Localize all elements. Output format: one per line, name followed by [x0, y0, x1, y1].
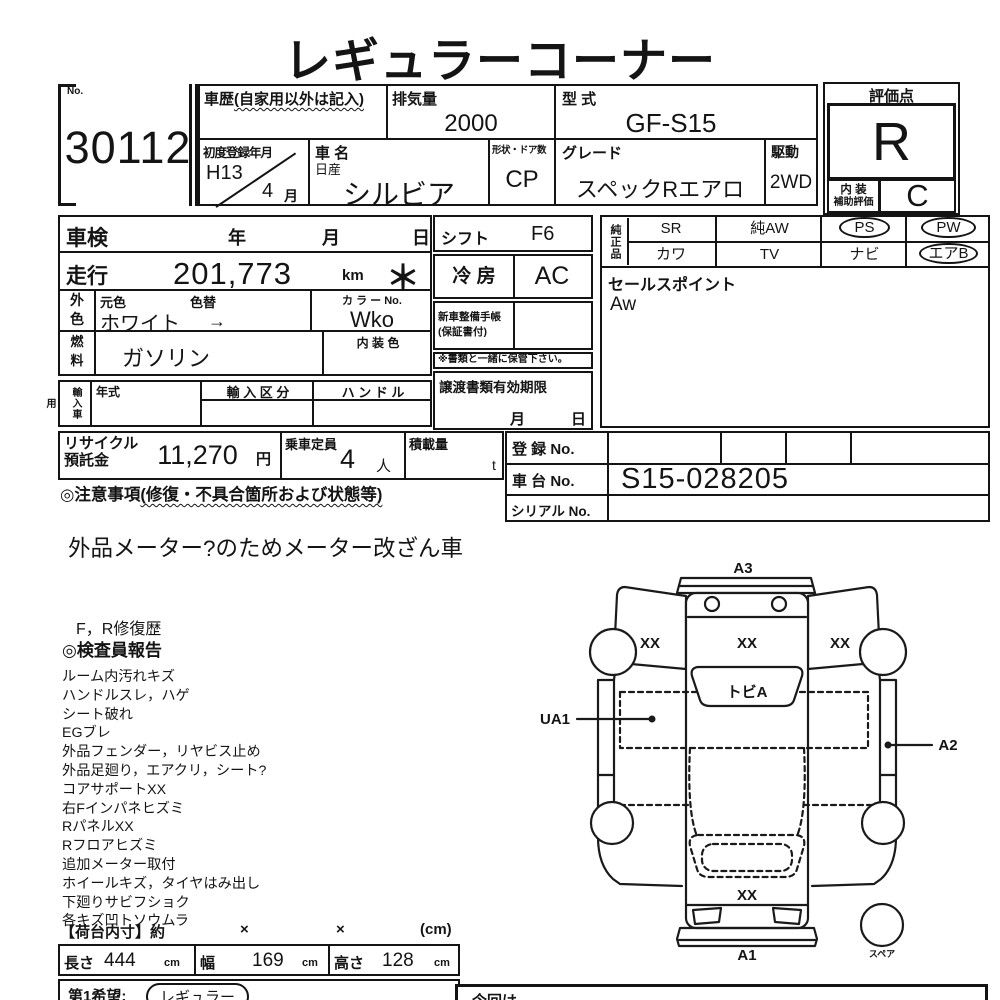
auction-sheet: レギュラーコーナー No. 30112 車歴(自家用以外は記入) 排気量 200… [0, 0, 1000, 1000]
drive-cell: 駆動 2WD [764, 138, 818, 206]
first-reg-year: H13 [206, 162, 243, 185]
first-wish-label: 第1希望: [68, 985, 126, 1000]
shift-value: F6 [531, 223, 554, 246]
diagram-label-xx-left: XX [640, 635, 660, 652]
car-condition-diagram: A3 XX XX XX トビA UA1 A2 XX A1 スペア [530, 553, 1000, 983]
displacement-label: 排気量 [392, 88, 437, 109]
displacement-value: 2000 [388, 110, 554, 138]
remark-item: 下廻りサビフショク [62, 892, 462, 911]
caution-note: 外品メーター?のためメーター改ざん車 [68, 531, 463, 563]
caution-heading: ◎注意事項(修復・不具合箇所および状態等) [60, 481, 382, 505]
service-book-label-box: 新車整備手帳 (保証書付) [435, 303, 515, 348]
oem-ps: PS [820, 217, 907, 243]
drive-label: 駆動 [771, 142, 799, 162]
color-change-arrow: → [208, 311, 226, 332]
first-reg-month: 4 [262, 180, 273, 203]
remark-item: 右Fインパネヒズミ [62, 798, 462, 817]
score-value: R [827, 103, 956, 180]
right-rocker-panel [880, 680, 896, 775]
height-value: 128 [382, 950, 414, 972]
cargo-x1: × [240, 921, 249, 938]
lot-number: 30112 [61, 122, 195, 174]
shaken-row: 車検 年 月 日 [58, 215, 432, 253]
shaken-year-unit: 年 [228, 224, 246, 250]
load-label: 積載量 [409, 434, 448, 453]
import-class-cell: 輸 入 区 分 [200, 382, 314, 425]
displacement-cell: 排気量 2000 [386, 84, 556, 140]
width-label: 幅 [200, 952, 215, 973]
oem-kawa: カワ [627, 243, 715, 266]
reg-no-label: 登 録 No. [512, 438, 575, 459]
registration-table: 登 録 No. 車 台 No. S15-028205 シリアル No. [505, 431, 990, 522]
oem-airbag: エアB [905, 243, 990, 266]
oem-aw: 純AW [715, 217, 822, 243]
oem-header: 純正品 [602, 218, 629, 265]
import-class-label: 輸 入 区 分 [202, 382, 314, 401]
spare-tire-circle [861, 904, 903, 946]
length-cell: 長さ 444 cm [60, 946, 194, 974]
history-label: 車歴 [204, 91, 234, 108]
front-bumper [677, 928, 817, 946]
inspector-heading: ◎検査員報告 [62, 636, 162, 661]
remark-item: コアサポートXX [62, 779, 462, 798]
transfer-docs-label: 譲渡書類有効期限 [439, 376, 547, 396]
length-unit: cm [164, 957, 180, 969]
history-note: (自家用以外は記入) [234, 91, 364, 108]
diagram-label-xx-front: XX [737, 887, 757, 904]
remark-item: 外品足廻り，エアクリ，シート? [62, 760, 462, 779]
color-change-label: 色替 [190, 292, 216, 311]
remark-item: ルーム内汚れキズ [62, 666, 462, 685]
front-right-wheel [862, 802, 904, 844]
front-left-wheel [591, 802, 633, 844]
oem-navi: ナビ [820, 243, 907, 266]
height-unit: cm [434, 957, 450, 969]
exterior-color-header: 外 色 [60, 291, 96, 330]
bottom-right-note-box: 今回は [455, 984, 988, 1000]
remark-item: 追加メーター取付 [62, 854, 462, 873]
car-name-cell: 車 名 日産 シルビア [308, 138, 490, 206]
interior-color-cell: 内 装 色 [322, 332, 432, 374]
import-handle-cell: ハ ン ド ル [312, 382, 432, 425]
remark-item: 外品フェンダー，リヤビス止め [62, 741, 462, 760]
first-wish-box: 第1希望: レギュラー [58, 979, 460, 1000]
ac-value: AC [513, 256, 591, 297]
capacity-cell: 乗車定員 4 人 [280, 433, 406, 478]
rear-left-wheel [590, 629, 636, 675]
first-wish-value: レギュラー [146, 983, 249, 1000]
page-title: レギュラーコーナー [0, 22, 1000, 91]
grade-value: スペックRエアロ [556, 172, 764, 204]
bottom-right-partial-text: 今回は [472, 990, 517, 1000]
width-value: 169 [252, 950, 284, 972]
shift-cell: シフト F6 [433, 215, 593, 252]
car-name-value: シルビア [310, 173, 488, 213]
remark-item: RパネルXX [62, 816, 462, 835]
rear-right-wheel [860, 629, 906, 675]
reg-divider-3 [850, 433, 852, 463]
capacity-unit: 人 [376, 455, 391, 476]
serial-label-cell: シリアル No. [507, 496, 609, 520]
dimensions-table: 長さ 444 cm 幅 169 cm 高さ 128 cm [58, 944, 460, 976]
cargo-unit: (cm) [420, 921, 452, 938]
interior-score-label: 内 装 補助評価 [827, 179, 880, 213]
recycle-unit: 円 [256, 448, 271, 469]
fuel-header: 燃 料 [60, 332, 96, 374]
capacity-label: 乗車定員 [285, 434, 337, 453]
import-row: 輸入車用 年式 輸 入 区 分 ハ ン ド ル [58, 380, 432, 427]
chassis-row: 車 台 No. S15-028205 [507, 463, 988, 496]
fuel-value: ガソリン [122, 341, 210, 373]
transfer-month-unit: 月 [510, 408, 525, 429]
length-label: 長さ [64, 952, 94, 973]
diagram-label-a1: A1 [737, 947, 756, 964]
body-doors-cell: 形状・ドア数 CP [488, 138, 556, 206]
capacity-value: 4 [340, 444, 355, 475]
reg-no-label-cell: 登 録 No. [507, 433, 609, 463]
sales-point-label: セールスポイント [608, 271, 736, 295]
mileage-unit: km [342, 267, 364, 284]
diagram-label-xx-roof: XX [737, 635, 757, 652]
recycle-cell: リサイクル 預託金 11,270 円 [60, 433, 280, 478]
import-year-label: 年式 [96, 383, 120, 400]
shift-label: シフト [441, 225, 489, 249]
body-doors-label: 形状・ドア数 [492, 142, 546, 156]
diagram-label-a3: A3 [733, 560, 752, 577]
import-handle-label: ハ ン ド ル [314, 382, 432, 401]
shaken-label: 車検 [66, 222, 108, 252]
grade-cell: グレード スペックRエアロ [554, 138, 766, 206]
remark-item: ハンドルスレ，ハゲ [62, 685, 462, 704]
oem-sr: SR [627, 217, 715, 243]
recycle-value: 11,270 [145, 440, 250, 471]
serial-label: シリアル No. [511, 500, 590, 520]
grade-label: グレード [562, 142, 622, 163]
service-book-cell: 新車整備手帳 (保証書付) [433, 301, 593, 350]
score-box: 評価点 R 内 装 補助評価 C [823, 82, 960, 215]
left-rocker-panel [598, 680, 614, 775]
oem-pw: PW [905, 217, 990, 243]
width-cell: 幅 169 cm [194, 946, 330, 974]
shaken-day-unit: 日 [412, 224, 430, 250]
model-code-label: 型 式 [562, 88, 596, 109]
mileage-label: 走行 [66, 260, 108, 290]
cargo-x2: × [336, 921, 345, 938]
diagram-label-a2: A2 [938, 737, 957, 754]
remark-item: シート破れ [62, 704, 462, 723]
height-cell: 高さ 128 cm [328, 946, 462, 974]
service-book-label: 新車整備手帳 [438, 309, 513, 324]
sales-point-value: Aw [610, 294, 636, 316]
diagram-label-rear-glass: トビA [727, 684, 768, 701]
fuel-row: 燃 料 ガソリン 内 装 色 [58, 330, 432, 376]
keep-note: ※書類と一緒に保管下さい。 [433, 352, 593, 369]
recycle-row: リサイクル 預託金 11,270 円 乗車定員 4 人 積載量 t [58, 431, 504, 480]
color-no-label: カ ラ ー No. [312, 292, 432, 308]
first-reg-label: 初度登録年月 [203, 142, 272, 161]
diagram-label-xx-right: XX [830, 635, 850, 652]
load-cell: 積載量 t [404, 433, 504, 478]
import-header: 輸入車用 [62, 383, 88, 424]
remark-item: ホイールキズ，タイヤはみ出し [62, 873, 462, 892]
reg-divider-1 [720, 433, 722, 463]
cargo-heading: 【荷台内寸】約 [60, 921, 165, 942]
exterior-color-row: 外 色 元色 色替 ホワイト → カ ラ ー No. Wko [58, 289, 432, 332]
divider-bar [189, 84, 198, 206]
chassis-label: 車 台 No. [512, 470, 575, 491]
import-year-cell: 年式 [90, 382, 202, 425]
length-value: 444 [104, 950, 136, 972]
drive-value: 2WD [766, 172, 816, 194]
height-label: 高さ [334, 952, 364, 973]
color-no-cell: カ ラ ー No. Wko [310, 291, 432, 330]
transfer-docs-cell: 譲渡書類有効期限 月 日 [433, 371, 593, 430]
ac-cell: 冷 房 AC [433, 254, 593, 299]
reg-divider-2 [785, 433, 787, 463]
inspector-remarks-list: ルーム内汚れキズ ハンドルスレ，ハゲ シート破れ EGブレ 外品フェンダー，リヤ… [62, 666, 462, 929]
mileage-row: 走行 201,773 km ＊ [58, 251, 432, 291]
remark-item: Rフロアヒズミ [62, 835, 462, 854]
ac-label: 冷 房 [435, 256, 515, 297]
width-unit: cm [302, 957, 318, 969]
chassis-label-cell: 車 台 No. [507, 465, 609, 494]
diagram-label-ua1: UA1 [540, 711, 570, 728]
shaken-month-unit: 月 [322, 224, 340, 250]
first-reg-month-unit: 月 [284, 186, 298, 206]
service-book-sub: (保証書付) [438, 324, 513, 339]
first-registration-cell: 初度登録年月 H13 4 月 [198, 138, 310, 206]
lot-no-label: No. [67, 86, 83, 97]
oem-table: 純正品 SR 純AW PS PW カワ TV ナビ エアB [600, 215, 990, 268]
interior-score-value: C [879, 179, 956, 213]
oem-tv: TV [715, 243, 822, 266]
mileage-value: 201,773 [120, 256, 345, 292]
sales-point-box: セールスポイント Aw [600, 266, 990, 428]
model-code-cell: 型 式 GF-S15 [554, 84, 818, 140]
interior-color-label: 内 装 色 [324, 334, 432, 351]
remark-item: EGブレ [62, 722, 462, 741]
chassis-value: S15-028205 [621, 463, 789, 496]
load-unit: t [492, 457, 496, 473]
body-doors-value: CP [490, 166, 554, 194]
history-cell: 車歴(自家用以外は記入) [198, 84, 388, 140]
diagram-label-spare: スペア [869, 949, 895, 959]
lot-number-box: No. 30112 [58, 84, 192, 206]
transfer-day-unit: 日 [571, 408, 586, 429]
model-code-value: GF-S15 [556, 108, 786, 139]
